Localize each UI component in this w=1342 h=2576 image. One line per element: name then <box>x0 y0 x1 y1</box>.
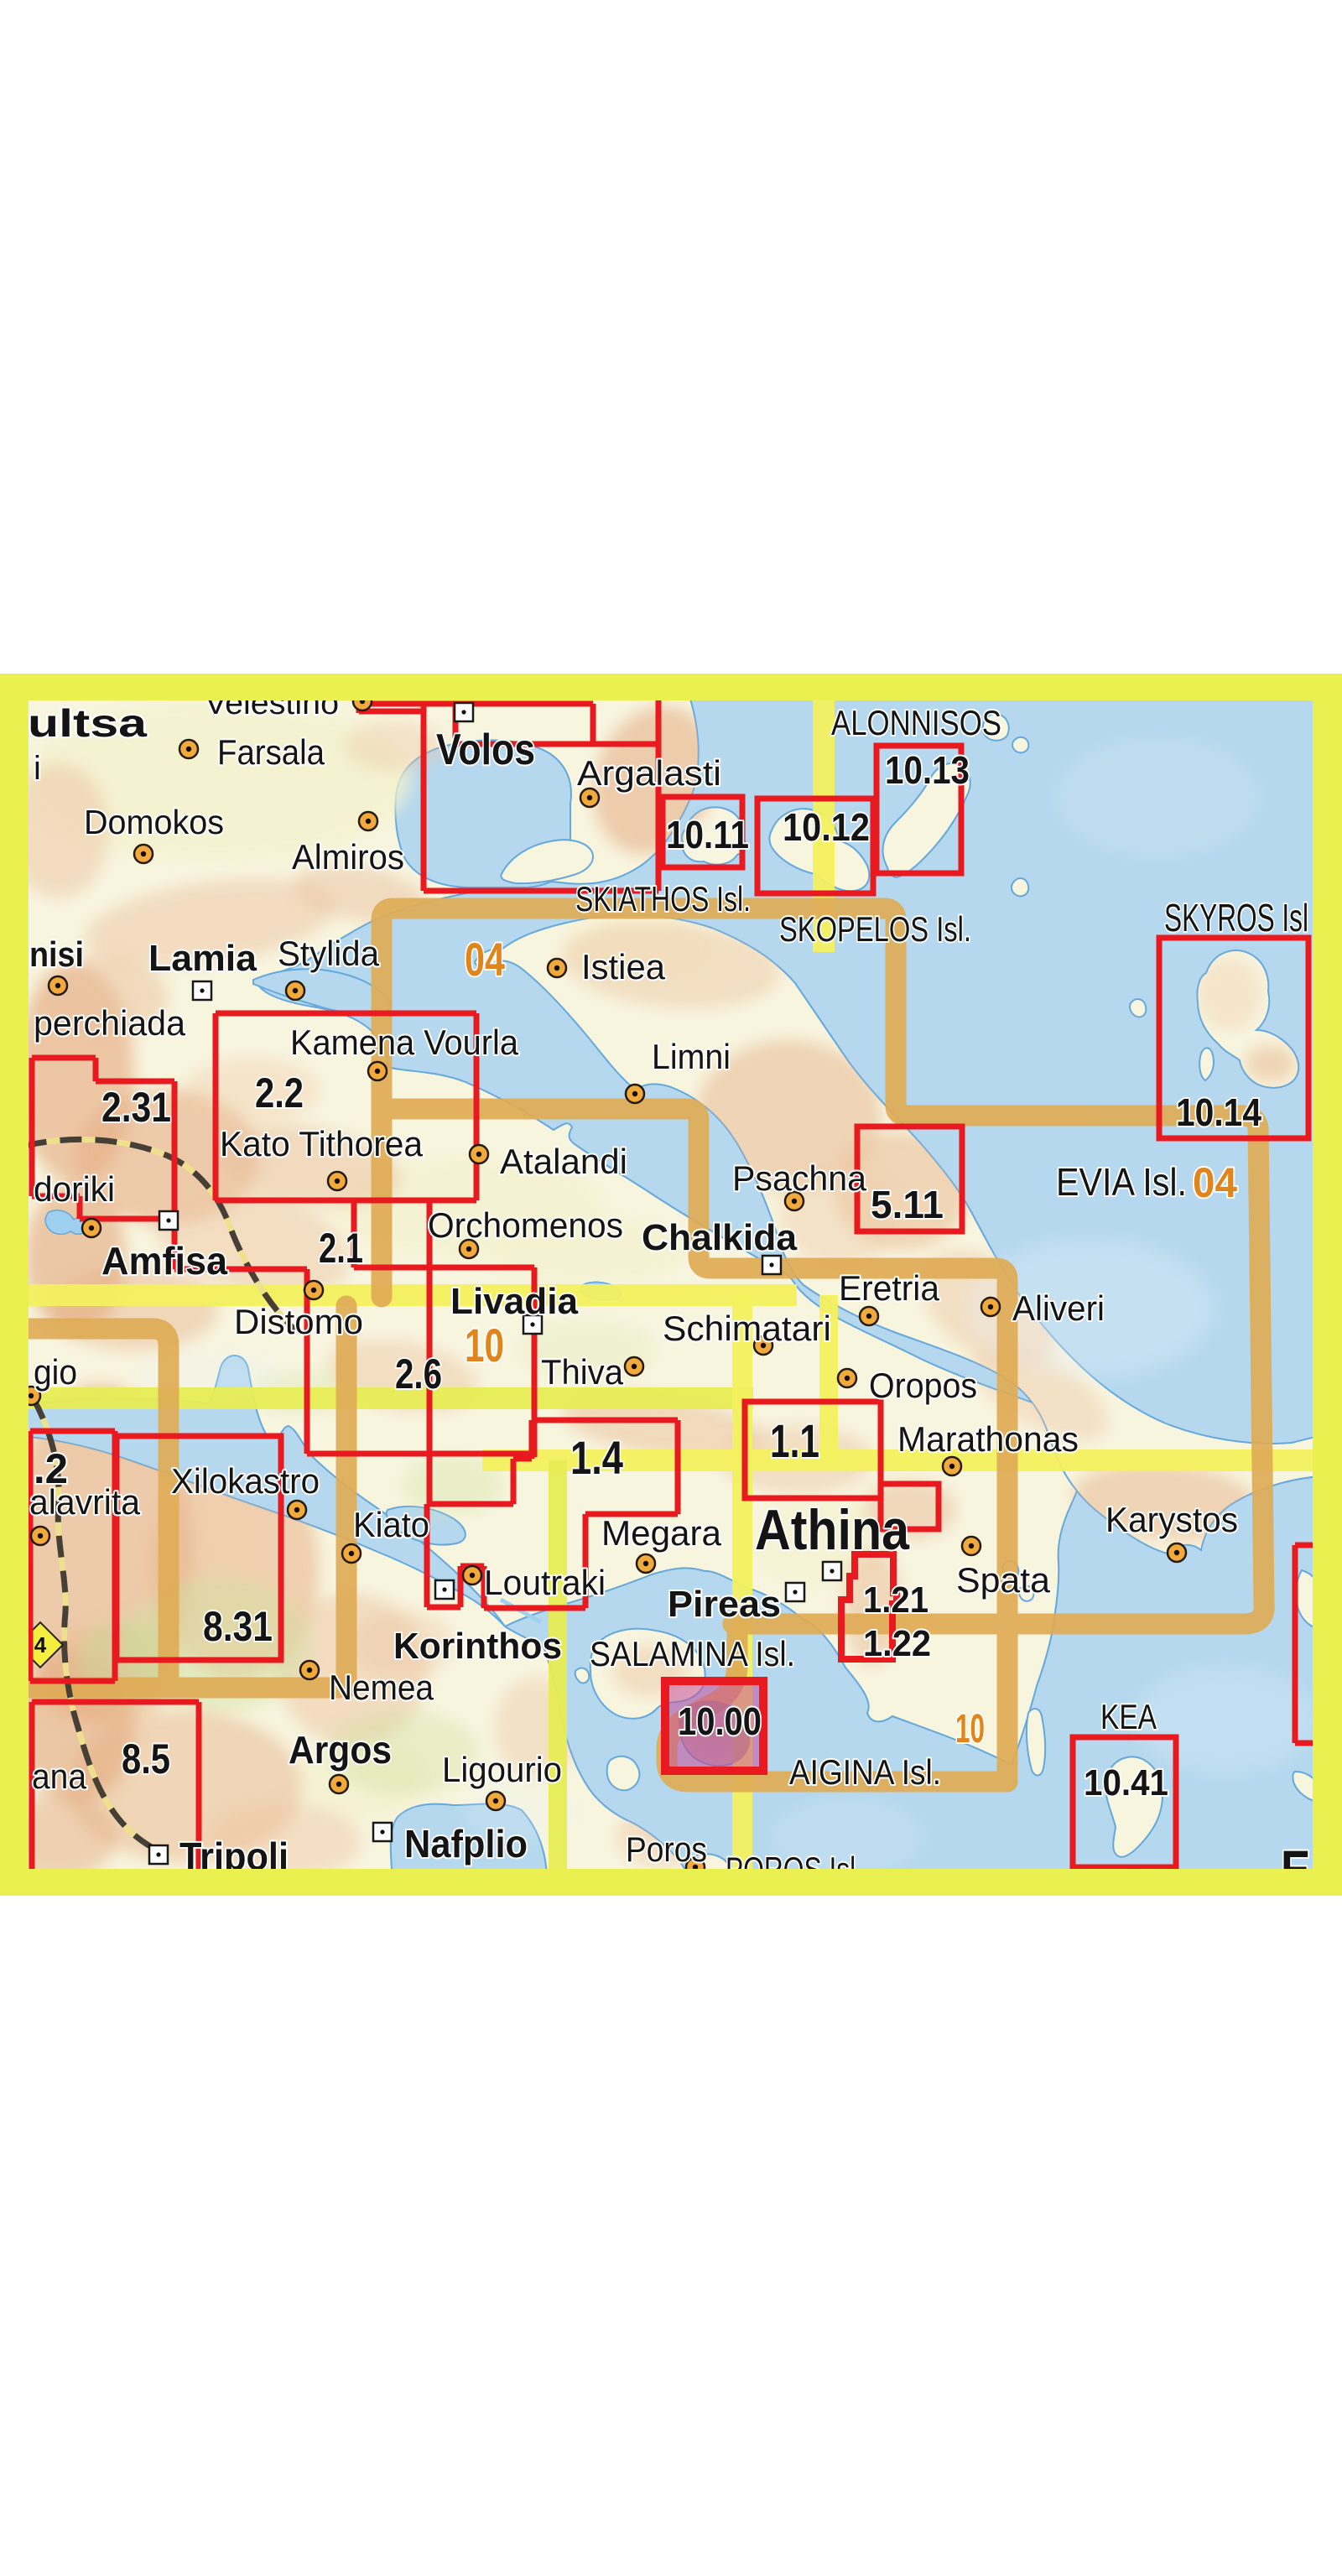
svg-text:Orchomenos: Orchomenos <box>428 1205 623 1245</box>
svg-text:Schimatari: Schimatari <box>663 1309 831 1348</box>
svg-text:04: 04 <box>1193 1159 1237 1206</box>
svg-text:SKYROS Isl: SKYROS Isl <box>1164 896 1308 939</box>
svg-text:Limni: Limni <box>652 1037 731 1076</box>
svg-text:SKIATHOS Isl.: SKIATHOS Isl. <box>575 879 751 919</box>
svg-text:Eretria: Eretria <box>839 1268 940 1308</box>
svg-text:Poros: Poros <box>626 1829 707 1869</box>
svg-text:ALONNISOS: ALONNISOS <box>831 703 1001 742</box>
svg-text:Lamia: Lamia <box>148 938 257 979</box>
svg-text:AIGINA Isl.: AIGINA Isl. <box>789 1752 941 1792</box>
svg-text:1.22: 1.22 <box>863 1623 931 1664</box>
svg-text:Nafplio: Nafplio <box>404 1822 528 1866</box>
svg-text:04: 04 <box>465 933 505 986</box>
svg-text:8.31: 8.31 <box>203 1603 273 1650</box>
svg-text:SKOPELOS Isl.: SKOPELOS Isl. <box>779 909 971 949</box>
svg-text:2.31: 2.31 <box>101 1084 171 1131</box>
svg-text:Kiato: Kiato <box>353 1505 429 1544</box>
svg-text:Xilokastro: Xilokastro <box>171 1461 320 1501</box>
svg-text:SALAMINA Isl.: SALAMINA Isl. <box>590 1634 795 1673</box>
svg-text:Livadia: Livadia <box>450 1281 579 1322</box>
svg-text:Spata: Spata <box>956 1560 1051 1600</box>
svg-text:Volos: Volos <box>436 726 535 774</box>
svg-text:10.14: 10.14 <box>1176 1090 1261 1134</box>
svg-text:8.5: 8.5 <box>122 1736 170 1782</box>
svg-text:2.2: 2.2 <box>255 1069 304 1116</box>
svg-text:Argalasti: Argalasti <box>577 753 721 793</box>
svg-text:alavrita: alavrita <box>29 1482 141 1522</box>
svg-text:ana: ana <box>32 1756 87 1796</box>
svg-text:Nemea: Nemea <box>329 1668 434 1707</box>
svg-text:Pireas: Pireas <box>668 1584 781 1625</box>
svg-text:Thiva: Thiva <box>541 1352 624 1392</box>
svg-text:Korinthos: Korinthos <box>393 1626 562 1667</box>
svg-text:10.41: 10.41 <box>1084 1762 1168 1803</box>
svg-text:10.13: 10.13 <box>885 748 970 792</box>
svg-text:4: 4 <box>34 1632 47 1657</box>
svg-text:nisi: nisi <box>29 934 84 974</box>
svg-text:2.1: 2.1 <box>319 1225 363 1272</box>
svg-text:Argos: Argos <box>289 1728 392 1772</box>
svg-text:Domokos: Domokos <box>84 803 224 841</box>
svg-text:1.1: 1.1 <box>770 1414 819 1467</box>
svg-text:i: i <box>34 750 41 787</box>
svg-text:perchiada: perchiada <box>34 1003 186 1043</box>
svg-text:ultsa: ultsa <box>28 701 148 745</box>
svg-text:EVIA Isl.: EVIA Isl. <box>1056 1160 1187 1204</box>
svg-text:10: 10 <box>465 1319 504 1371</box>
svg-text:Oropos: Oropos <box>869 1366 977 1405</box>
svg-text:Amfisa: Amfisa <box>101 1239 227 1283</box>
svg-text:Psachna: Psachna <box>732 1158 867 1198</box>
svg-text:10.11: 10.11 <box>666 813 749 856</box>
svg-text:Aliveri: Aliveri <box>1012 1288 1105 1328</box>
svg-text:Megara: Megara <box>601 1513 722 1553</box>
svg-text:Kamena Vourla: Kamena Vourla <box>290 1023 519 1062</box>
svg-text:Marathonas: Marathonas <box>897 1419 1079 1459</box>
svg-text:Karystos: Karystos <box>1105 1500 1238 1539</box>
svg-text:Atalandi: Atalandi <box>500 1142 627 1181</box>
svg-text:Ligourio: Ligourio <box>442 1750 562 1789</box>
svg-text:Stylida: Stylida <box>278 934 380 973</box>
svg-text:gio: gio <box>34 1352 77 1392</box>
svg-text:Farsala: Farsala <box>217 732 325 772</box>
svg-text:Almiros: Almiros <box>292 837 404 877</box>
svg-text:Istiea: Istiea <box>581 947 666 986</box>
svg-text:Distomo: Distomo <box>234 1302 363 1341</box>
svg-text:5.11: 5.11 <box>871 1183 944 1226</box>
svg-text:1.4: 1.4 <box>570 1431 623 1484</box>
svg-text:2.6: 2.6 <box>395 1350 442 1397</box>
svg-text:10: 10 <box>955 1707 985 1751</box>
svg-text:doriki: doriki <box>34 1169 115 1209</box>
svg-text:10.12: 10.12 <box>783 805 870 849</box>
svg-text:1.21: 1.21 <box>863 1579 928 1621</box>
svg-text:10.00: 10.00 <box>678 1699 762 1743</box>
svg-text:Athina: Athina <box>755 1498 910 1562</box>
svg-text:KEA: KEA <box>1100 1697 1157 1736</box>
svg-text:Loutraki: Loutraki <box>484 1563 606 1602</box>
svg-text:Chalkida: Chalkida <box>642 1217 798 1258</box>
svg-text:Kato Tithorea: Kato Tithorea <box>220 1124 424 1163</box>
